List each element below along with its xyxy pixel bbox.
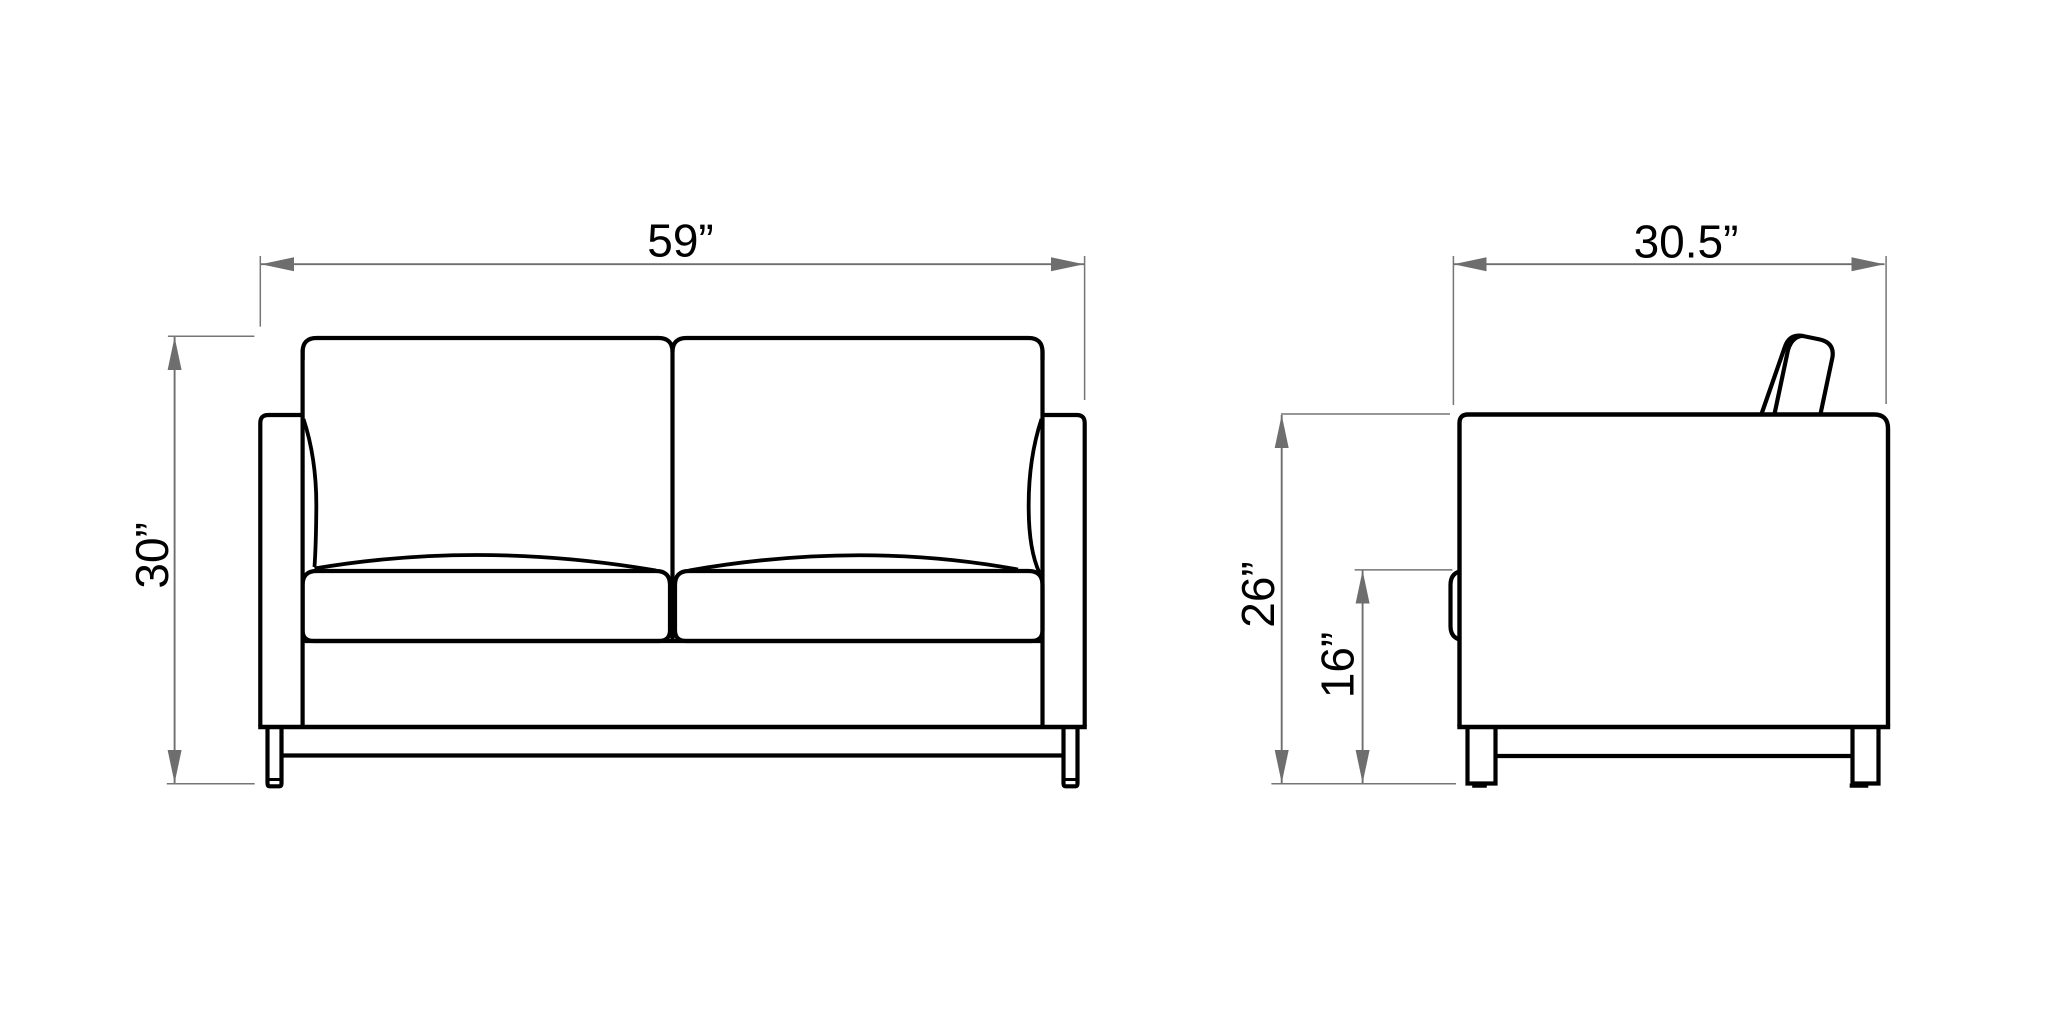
svg-text:26”: 26” bbox=[1232, 561, 1284, 627]
svg-text:30.5”: 30.5” bbox=[1634, 216, 1739, 268]
svg-text:16”: 16” bbox=[1312, 632, 1364, 698]
svg-text:59”: 59” bbox=[647, 215, 713, 267]
svg-text:30”: 30” bbox=[126, 522, 178, 588]
